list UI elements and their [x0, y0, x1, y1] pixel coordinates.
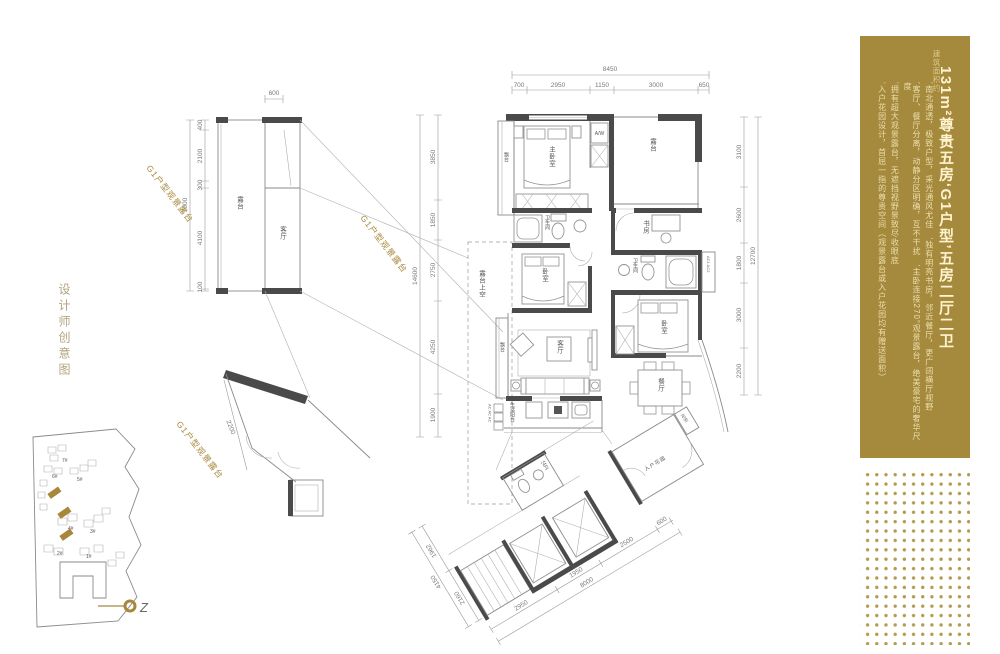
detail-view: 露台 客厅 400 2100 300 4100 100 7000 600: [182, 90, 302, 294]
armchair: [510, 333, 533, 356]
dim-text: 400: [197, 119, 204, 130]
dim-text: 2950: [551, 82, 566, 89]
room-label-balcony: 生活阳台: [509, 401, 515, 423]
lobby-wc: 公卫: [500, 450, 565, 511]
tv-cabinet: [592, 330, 597, 370]
room-label-bath2: 卫生间: [632, 258, 638, 274]
elevator-2: [544, 490, 618, 568]
ac-closet-label: AC1 AC2: [706, 256, 711, 273]
room-label-entry-garden: 入户花园: [643, 454, 667, 472]
tv: [588, 338, 592, 362]
room-label-terrace-void: 露台上空: [478, 270, 486, 298]
dim-chain-wing-bottom: 2950 1950 2500 600 8000: [487, 513, 682, 644]
room-label-terrace-top: 露台: [649, 138, 657, 153]
room-label-bay-living: 飘台: [499, 342, 505, 353]
dim-text: 1800: [736, 255, 743, 270]
dim-text: 4100: [197, 230, 204, 245]
dim-text: 2500: [619, 536, 635, 550]
toilet: [642, 264, 654, 280]
callout-label: G1户型观景露台: [144, 163, 195, 225]
basin: [619, 265, 630, 276]
room-label-wc: 公卫: [539, 460, 549, 472]
dim-text: 2600: [736, 207, 743, 222]
bathtub: [514, 215, 542, 242]
building-label: 5#: [77, 477, 83, 483]
toilet: [552, 223, 564, 239]
master-bedroom: 主卧室: [514, 121, 588, 209]
dim-text: 8000: [579, 576, 595, 590]
callout-label: G1户型观景露台: [358, 213, 409, 275]
sofa: [526, 378, 584, 394]
nightstand: [514, 126, 523, 138]
dim-text: 3000: [649, 82, 664, 89]
highlighted-building: [57, 507, 71, 519]
projection-lines: [265, 120, 503, 400]
room-label-living: 客厅: [279, 225, 287, 240]
dim-text: 14600: [412, 267, 419, 285]
dim-text: 700: [514, 82, 525, 89]
bathtub: [666, 256, 696, 288]
building-label: 3#: [90, 529, 96, 535]
room-label-bath1: 卫生间: [544, 215, 550, 231]
dim-text: 3850: [430, 149, 437, 164]
dim-text: 300: [197, 179, 204, 190]
building-label: 6#: [52, 474, 58, 480]
terrace-void: 露台上空: [468, 242, 512, 504]
planter-label: 花池: [679, 412, 689, 424]
nightstand: [572, 126, 581, 138]
dim-text: 8450: [603, 66, 618, 73]
dim-text: 1850: [430, 212, 437, 227]
dim-text: 2200: [736, 363, 743, 378]
utility-closet: A/W: [590, 121, 614, 211]
site-buildings: [38, 445, 124, 598]
dim-text: 600: [269, 90, 280, 97]
basin: [574, 220, 586, 232]
dim-text: 12700: [750, 247, 757, 265]
dim-chain-right: 3100 2600 1800 3000 2200 12700: [736, 117, 762, 395]
dim-text: 650: [699, 82, 710, 89]
site-plan: 7# 6# 5# 4# 3# 2# 1# Z: [33, 429, 149, 627]
compass-letter: Z: [139, 600, 149, 615]
building-label: 1#: [86, 554, 92, 560]
entry-garden: 入户花园 花池: [607, 405, 717, 505]
room-label-bay: 飘台: [503, 152, 509, 163]
highlighted-building: [47, 487, 61, 499]
dim-text: 3000: [736, 307, 743, 322]
study: 书房: [611, 208, 702, 255]
chair: [661, 233, 671, 243]
lower-terrace: 2200: [223, 370, 370, 516]
service-balcony: 生活阳台 AC AC AC: [488, 400, 613, 470]
desk: [652, 215, 680, 231]
elevator-1: [501, 516, 575, 594]
callout-label: G1户型观景露台: [174, 419, 225, 481]
building-label: 2#: [57, 551, 63, 557]
dim-text: 1150: [595, 82, 609, 89]
room-label-study: 书房: [642, 219, 650, 235]
dim-text: 100: [197, 281, 204, 292]
bedroom-3: 卧室: [611, 295, 702, 358]
dim-chain-wing-left: 1962 2160 4150: [405, 524, 482, 631]
compass: Z: [98, 600, 149, 615]
building-label: 4#: [68, 526, 74, 532]
room-label-terrace: 露台: [236, 196, 244, 211]
bedroom-2: 卧室: [512, 252, 592, 313]
dim-chain-top: 8450 700 2950 1150 3000 650: [512, 66, 710, 94]
floor-plan-drawing: 8450 700 2950 1150 3000 650 14600 3850 1…: [0, 0, 1000, 654]
dim-text: 2160: [453, 589, 467, 605]
dim-text: 600: [656, 515, 669, 527]
wardrobe: [516, 194, 588, 209]
toilet: [516, 477, 532, 494]
dim-text: 1962: [425, 542, 439, 558]
appliance-label: A/W: [595, 131, 605, 137]
dim-text: 2750: [430, 262, 437, 277]
terrace-top: 露台: [614, 138, 699, 209]
ac-units-label: AC AC AC: [488, 404, 493, 423]
dim-text: 2950: [513, 599, 529, 613]
dim-chain-left: 14600 3850 1850 2750 4250 1900: [412, 115, 442, 437]
building-label: 7#: [62, 458, 68, 464]
dim-text: 2100: [197, 148, 204, 163]
dim-text: 1900: [430, 407, 437, 422]
dim-text: 3100: [736, 144, 743, 159]
bay-window-top: 飘台: [498, 121, 514, 215]
bathroom-2: 卫生间 AC1 AC2: [611, 250, 715, 295]
dim-text: 4250: [430, 339, 437, 354]
dim-text: 4150: [429, 573, 443, 589]
bathroom-1: 卫生间: [512, 208, 592, 261]
